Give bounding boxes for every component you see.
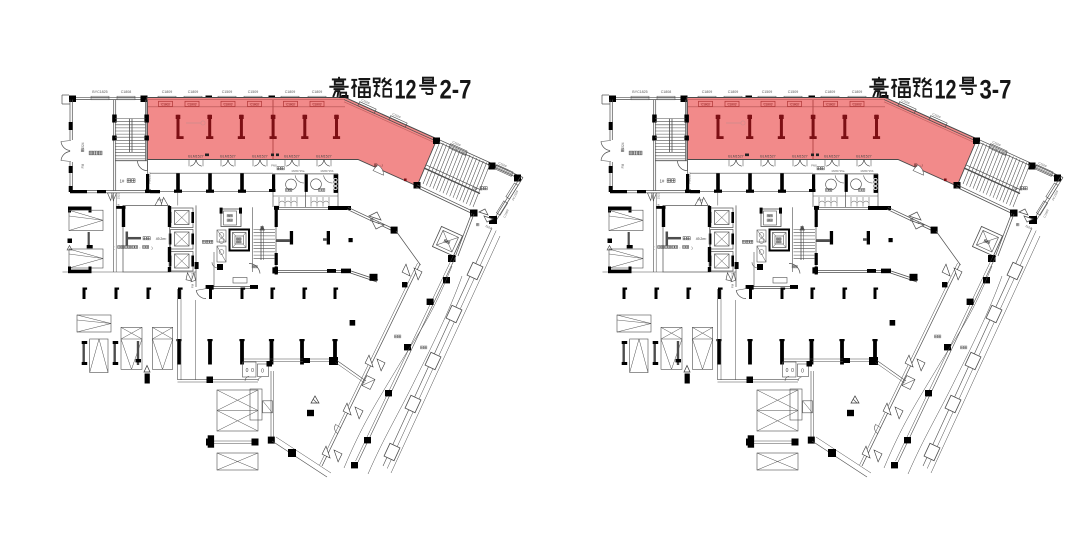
svg-text:BLM1527: BLM1527 [220,155,235,159]
svg-text:FM: FM [621,163,625,168]
svg-text:1521: 1521 [117,192,121,199]
svg-text:C1808: C1808 [121,90,132,94]
svg-text:C1802: C1802 [313,103,322,107]
svg-text:12: 12 [395,75,417,105]
svg-text::: : [140,246,141,250]
svg-text:PM0: PM0 [811,164,817,168]
svg-text:BLM1527: BLM1527 [728,155,743,159]
svg-text:BLM1527: BLM1527 [284,155,299,159]
svg-text:FM: FM [81,163,85,168]
svg-text:49.2m²: 49.2m² [156,237,167,241]
svg-text:PM0: PM0 [271,164,277,168]
svg-text:-1: -1 [917,221,920,225]
svg-text:0: 0 [786,368,789,374]
svg-text:2-7: 2-7 [440,75,472,105]
svg-text:C1802: C1802 [790,103,799,107]
svg-text:C1809: C1809 [825,90,836,94]
svg-text:C1802: C1802 [161,103,170,107]
svg-text:C1802: C1802 [188,103,197,107]
svg-text:BLM1527: BLM1527 [792,155,807,159]
svg-text:C1802: C1802 [728,103,737,107]
svg-text:3-7: 3-7 [980,75,1012,105]
svg-text:C1808: C1808 [661,90,672,94]
svg-text:0: 0 [791,368,794,374]
svg-text:BLM1527: BLM1527 [824,155,839,159]
svg-text:0: 0 [801,369,804,375]
svg-text:0: 0 [246,368,249,374]
svg-text:C1509: C1509 [762,90,773,94]
svg-text:1524: 1524 [621,142,625,149]
svg-text:BLM1527: BLM1527 [252,155,267,159]
svg-text:): ) [691,246,692,250]
svg-text:MW0715a: MW0715a [832,169,845,173]
svg-text:1521: 1521 [157,198,164,202]
svg-text:BLM1527: BLM1527 [188,155,203,159]
svg-text:1#: 1# [660,179,665,184]
svg-text:FM: FM [730,283,734,288]
svg-text:C1802: C1802 [224,103,233,107]
svg-text:C1809: C1809 [285,90,296,94]
svg-text:C1509: C1509 [788,90,799,94]
svg-text:1524: 1524 [81,142,85,149]
svg-text:C1802: C1802 [853,103,862,107]
svg-text:BLM1527: BLM1527 [760,155,775,159]
svg-text:C1809: C1809 [312,90,323,94]
svg-text:MW0715a: MW0715a [292,169,305,173]
svg-text:C1809: C1809 [702,90,713,94]
svg-text:C1809: C1809 [852,90,863,94]
svg-text:C1809: C1809 [728,90,739,94]
svg-text:C1802: C1802 [826,103,835,107]
svg-text:BYC1825: BYC1825 [92,90,107,94]
svg-text:C1509: C1509 [222,90,233,94]
svg-text:C1802: C1802 [286,103,295,107]
svg-text:49.2m²: 49.2m² [696,237,707,241]
svg-text:MW0715b: MW0715b [861,169,874,173]
svg-text:): ) [151,246,152,250]
svg-text:0: 0 [261,369,264,375]
svg-text:-1: -1 [377,221,380,225]
svg-text:1#: 1# [120,179,125,184]
svg-text:C1509: C1509 [248,90,259,94]
svg-text:12: 12 [935,75,957,105]
svg-text:C1809: C1809 [162,90,173,94]
svg-text:FM: FM [190,283,194,288]
svg-text:0: 0 [251,368,254,374]
svg-text:BYC1825: BYC1825 [632,90,647,94]
svg-text:C1802: C1802 [250,103,259,107]
svg-text:C1802: C1802 [701,103,710,107]
svg-text:BLM1527: BLM1527 [856,155,871,159]
svg-text:MW0715b: MW0715b [321,169,334,173]
svg-text:1521: 1521 [697,198,704,202]
svg-text:1521: 1521 [657,192,661,199]
svg-text:C1809: C1809 [188,90,199,94]
svg-text::: : [680,246,681,250]
svg-text:BLM1527: BLM1527 [316,155,331,159]
svg-text:C1802: C1802 [764,103,773,107]
